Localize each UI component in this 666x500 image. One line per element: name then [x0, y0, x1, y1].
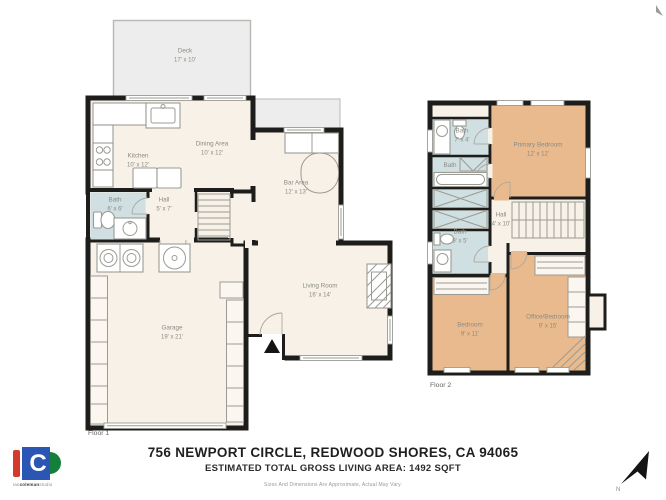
living-area-subtitle: ESTIMATED TOTAL GROSS LIVING AREA: 1492 … — [0, 463, 666, 474]
logo-letter: C — [29, 452, 46, 476]
room-dims: 6' x 6' — [107, 205, 122, 213]
room-labels-layer: Deck 17' x 10' Kitchen 10' x 12' Dining … — [0, 0, 666, 500]
room-name: Hall — [156, 197, 171, 206]
room-label-hall1: Hall 5' x 7' — [156, 197, 171, 214]
room-name: Dining Area — [196, 141, 229, 150]
room-name: Bath — [454, 128, 469, 137]
room-name: Garage — [161, 325, 183, 334]
room-label-bath-mid: Bath — [444, 162, 457, 171]
room-label-office-bedroom: Office/Bedroom 9' x 15' — [526, 314, 570, 331]
room-dims: 12' x 13' — [284, 188, 309, 196]
room-label-hall2: Hall 4' x 10' — [492, 212, 511, 229]
room-name: Hall — [492, 212, 511, 221]
logo-text: iancolemanstudio — [13, 482, 69, 487]
room-name: Bedroom — [457, 322, 483, 331]
room-name: Bath — [444, 162, 457, 171]
floor2-caption: Floor 2 — [430, 382, 451, 389]
room-dims: 9' x 15' — [526, 322, 570, 330]
logo-text-light: ian — [13, 482, 20, 487]
room-dims: 10' x 12' — [127, 161, 149, 169]
room-label-bath1: Bath 6' x 6' — [107, 197, 122, 214]
address-title: 756 NEWPORT CIRCLE, REDWOOD SHORES, CA 9… — [0, 445, 666, 460]
logo-blue-square: C — [22, 447, 50, 480]
room-name: Bar Area — [284, 180, 309, 189]
room-name: Kitchen — [127, 153, 149, 162]
disclaimer-text: Sizes And Dimensions Are Approximate, Ac… — [0, 482, 666, 488]
room-dims: 12' x 12' — [514, 150, 563, 158]
room-name: Bath — [107, 197, 122, 206]
logo-green-arc — [50, 452, 61, 474]
room-dims: 4' x 10' — [492, 220, 511, 228]
room-label-kitchen: Kitchen 10' x 12' — [127, 153, 149, 170]
logo-text-light: studio — [39, 482, 52, 487]
room-dims: 9' x 11' — [457, 330, 483, 338]
room-name: Primary Bedroom — [514, 142, 563, 151]
room-dims: 7' x 4' — [454, 136, 469, 144]
room-name: Bath — [452, 229, 467, 238]
floorplan-page: N Deck 17' x 10' Kitchen 10' x 12' Dinin… — [0, 0, 666, 500]
room-dims: 10' x 12' — [196, 149, 229, 157]
room-label-bar: Bar Area 12' x 13' — [284, 180, 309, 197]
room-dims: 17' x 10' — [174, 56, 196, 64]
room-name: Deck — [174, 48, 196, 57]
room-label-primary-bedroom: Primary Bedroom 12' x 12' — [514, 142, 563, 159]
room-dims: 5' x 7' — [156, 205, 171, 213]
room-label-bath-lower: Bath 9' x 5' — [452, 229, 467, 246]
room-name: Office/Bedroom — [526, 314, 570, 323]
room-label-dining: Dining Area 10' x 12' — [196, 141, 229, 158]
room-dims: 19' x 21' — [161, 333, 183, 341]
room-name: Living Room — [303, 283, 338, 292]
room-label-bath-top: Bath 7' x 4' — [454, 128, 469, 145]
room-label-living: Living Room 16' x 14' — [303, 283, 338, 300]
studio-logo: C iancolemanstudio — [13, 447, 69, 491]
room-label-garage: Garage 19' x 21' — [161, 325, 183, 342]
room-dims: 9' x 5' — [452, 237, 467, 245]
floor1-caption: Floor 1 — [88, 430, 109, 437]
room-dims: 16' x 14' — [303, 291, 338, 299]
logo-text-bold: coleman — [20, 482, 40, 487]
room-label-deck: Deck 17' x 10' — [174, 48, 196, 65]
room-label-bedroom: Bedroom 9' x 11' — [457, 322, 483, 339]
logo-red-bar — [13, 450, 20, 477]
